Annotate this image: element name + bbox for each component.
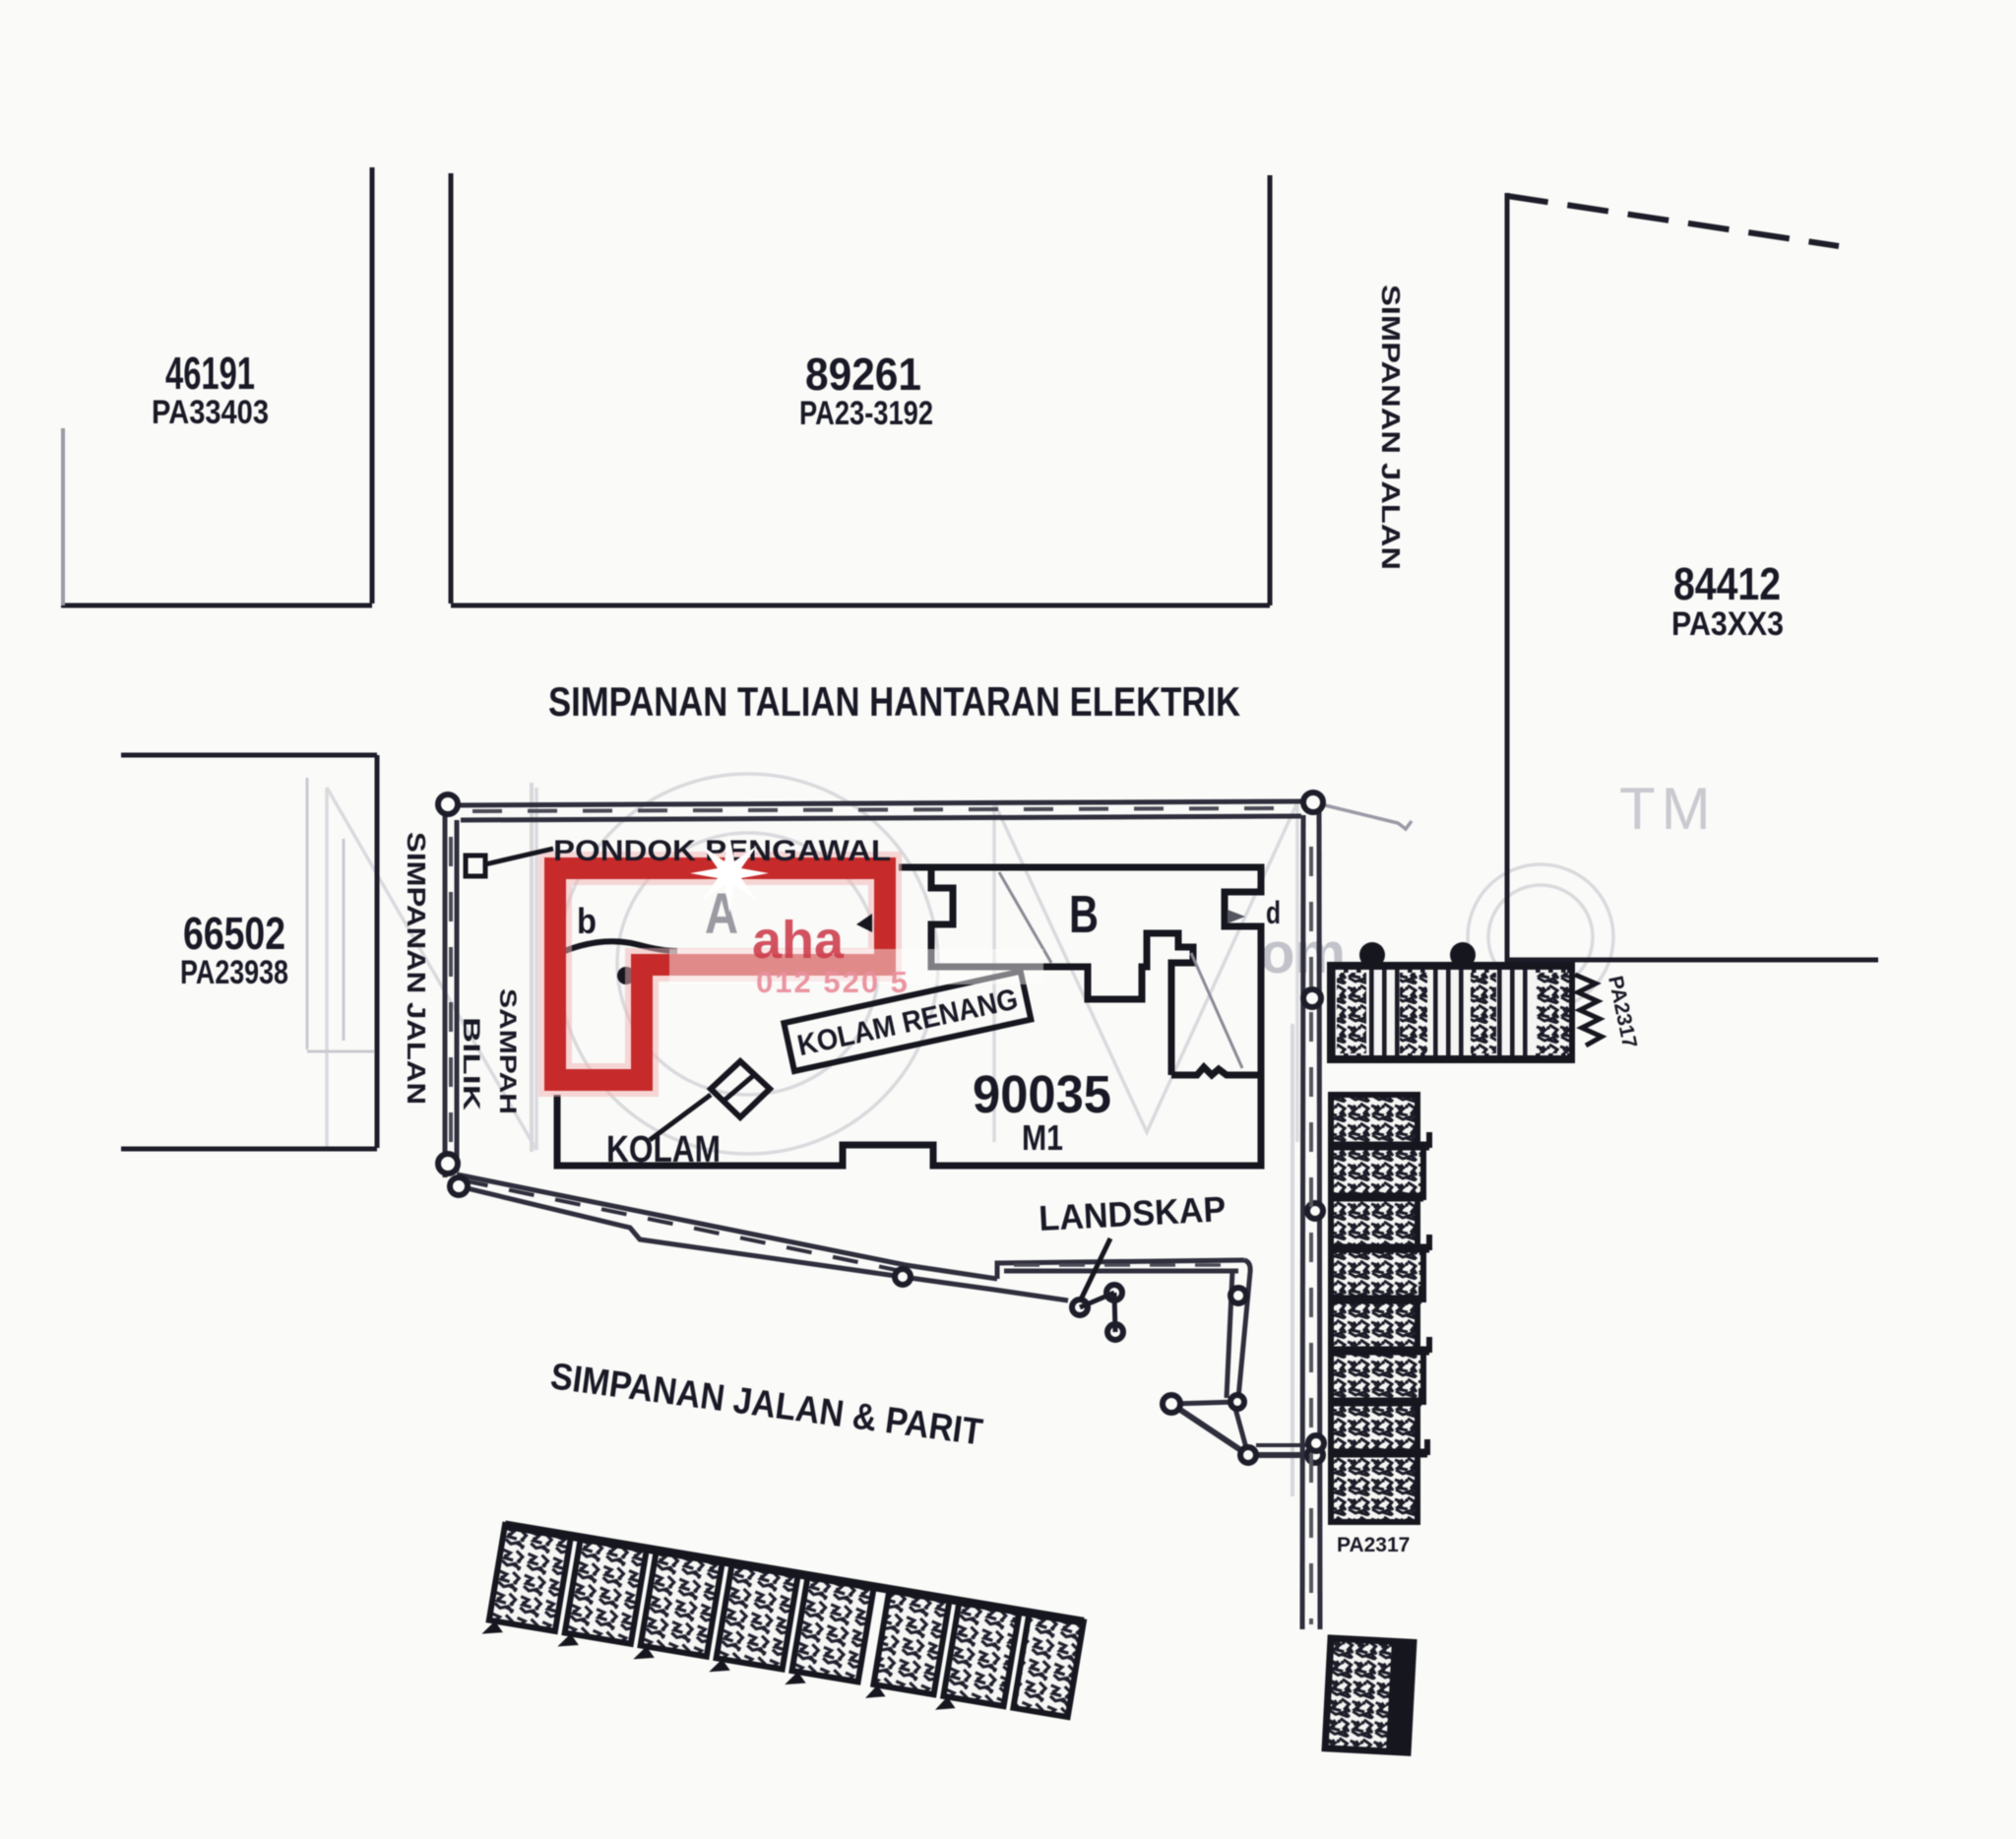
svg-text:B: B — [1069, 885, 1099, 944]
svg-text:TM: TM — [1619, 776, 1717, 842]
svg-text:d: d — [1266, 895, 1281, 930]
svg-text:aha: aha — [752, 911, 845, 970]
svg-text:PA3XX3: PA3XX3 — [1671, 605, 1784, 643]
svg-text:SIMPANAN JALAN & PARIT: SIMPANAN JALAN & PARIT — [548, 1356, 985, 1453]
svg-text:PA33403: PA33403 — [152, 394, 269, 431]
svg-text:012 520 5: 012 520 5 — [756, 965, 910, 999]
svg-text:SAMPAH: SAMPAH — [494, 988, 521, 1114]
svg-text:PA23-3192: PA23-3192 — [799, 395, 933, 432]
svg-text:PA23938: PA23938 — [180, 954, 288, 991]
svg-text:b: b — [577, 901, 597, 941]
svg-text:SIMPANAN JALAN: SIMPANAN JALAN — [1376, 285, 1406, 570]
svg-text:M1: M1 — [1022, 1117, 1063, 1158]
svg-text:PA2317: PA2317 — [1337, 1534, 1410, 1556]
svg-text:SIMPANAN TALIAN HANTARAN EL: SIMPANAN TALIAN HANTARAN ELEKTRIK — [548, 678, 1240, 725]
svg-text:SIMPANAN JALAN: SIMPANAN JALAN — [402, 832, 431, 1105]
svg-text:84412: 84412 — [1673, 558, 1781, 609]
svg-text:KOLAM: KOLAM — [606, 1129, 721, 1171]
svg-text:46191: 46191 — [165, 348, 255, 399]
svg-text:89261: 89261 — [805, 349, 921, 400]
svg-text:PA2317: PA2317 — [1604, 974, 1641, 1050]
svg-text:66502: 66502 — [183, 908, 285, 959]
svg-text:90035: 90035 — [973, 1065, 1111, 1124]
svg-text:LANDSKAP: LANDSKAP — [1038, 1188, 1227, 1238]
svg-text:BILIK: BILIK — [458, 1017, 484, 1111]
